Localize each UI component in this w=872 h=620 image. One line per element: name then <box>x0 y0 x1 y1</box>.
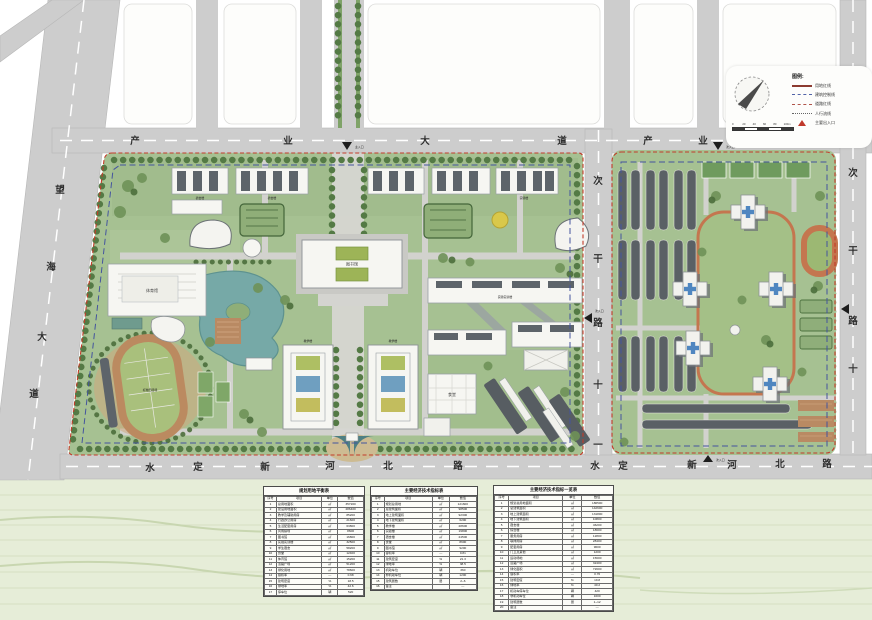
road-label-char: 北 <box>383 460 393 472</box>
indicator-table-center: 主要经济技术指标表 序号项目单位数值1规划总用地㎡1216002总建筑面积㎡98… <box>370 486 478 591</box>
compass-icon <box>726 66 790 148</box>
road-vertical-north-3 <box>604 0 630 129</box>
legend-item: 用地红线 <box>792 83 868 89</box>
road-redline-swatch-icon <box>792 104 812 105</box>
library-label: 图书馆 <box>346 261 358 267</box>
table-row: 17停车位辆520 <box>265 590 364 595</box>
table-cell: 备注 <box>509 605 563 610</box>
yellow-plaza-feature <box>492 212 508 228</box>
road-label-char: 次 <box>593 175 603 187</box>
main-entrance-label: 主入口 <box>355 144 364 149</box>
legend-list: 图例: 用地红线 建筑控制线 道路红线 人行流线 主要出入口 <box>790 66 872 148</box>
road-label-char: 干 <box>848 246 858 257</box>
legend-item: 人行流线 <box>792 111 868 117</box>
entrance-triangle-icon <box>798 120 806 126</box>
road-label-char: 望 <box>55 184 65 196</box>
table-title: 主要经济技术指标一览表 <box>494 486 613 495</box>
table-cell: 停车位 <box>276 590 322 595</box>
legend-item: 主要出入口 <box>792 120 868 126</box>
road-label-char: 干 <box>593 254 603 265</box>
table-cell: 16 <box>372 584 385 589</box>
road-label-char: 产 <box>130 135 140 147</box>
table-cell: 辆 <box>322 590 338 595</box>
dorm-label-2: 宿舍楼 <box>268 195 277 200</box>
road-label-char: 水 <box>590 460 600 472</box>
canteen-label: 食堂 <box>448 391 456 397</box>
road-label-char: 一 <box>593 440 603 451</box>
road-label-char: 新 <box>687 459 697 471</box>
road-label-char: 产 <box>643 135 653 147</box>
road-label-char: 海 <box>46 261 56 273</box>
road-label-char: 定 <box>192 461 203 473</box>
pedestrian-line-swatch-icon <box>792 113 812 114</box>
indicator-table-right: 主要经济技术指标一览表 序号项目单位数值1规划总用地面积㎡1865002总建筑面… <box>493 485 614 612</box>
table-cell: 520 <box>338 590 364 595</box>
right-running-track <box>804 228 835 274</box>
road-label-char: 大 <box>420 135 430 147</box>
scale-tick: 80 <box>773 122 783 126</box>
table-cell: — <box>582 605 613 610</box>
table-row: 20备注— <box>495 605 613 610</box>
legend-item-label: 主要出入口 <box>815 120 835 126</box>
table-title: 主要经济技术指标表 <box>371 487 477 496</box>
secondary-entrance-label-3: 次入口 <box>595 308 604 313</box>
scale-bar: 0 20 40 60 80 100m <box>732 122 794 131</box>
road-label-char: 业 <box>283 135 293 147</box>
road-label-char: 十 <box>593 379 603 391</box>
gym-label: 体育馆 <box>146 287 158 293</box>
road-vertical-north-2 <box>300 0 322 129</box>
road-label-char: 路 <box>822 458 832 470</box>
scale-tick: 60 <box>763 122 773 126</box>
redline-swatch-icon <box>792 85 812 87</box>
road-label-char: 路 <box>453 460 463 472</box>
hedge-garden-west <box>240 204 284 236</box>
legend-item-label: 道路红线 <box>815 101 831 107</box>
road-label-char: 道 <box>557 135 567 147</box>
road-label-char: 定 <box>617 460 628 472</box>
teach-label-a: 教学楼 <box>304 338 313 343</box>
legend-item: 道路红线 <box>792 101 868 107</box>
scale-tick: 100m <box>784 122 794 126</box>
table-cell <box>563 605 582 610</box>
legend-title: 图例: <box>792 73 868 80</box>
road-vertical-north-4 <box>697 0 719 129</box>
table-cell: 备注 <box>384 584 432 589</box>
road-label-char: 路 <box>848 315 858 327</box>
dorm-label-1: 宿舍楼 <box>196 195 205 200</box>
road-label-char: 路 <box>593 317 603 329</box>
road-label-char: 水 <box>145 462 155 474</box>
legend-item-label: 建筑控制线 <box>815 92 835 98</box>
road-label-char: 次 <box>848 167 858 179</box>
road-label-char: 河 <box>325 460 335 472</box>
table-row: 16备注— <box>372 584 477 589</box>
lab-label: 实验实训楼 <box>498 294 513 299</box>
legend-item-label: 用地红线 <box>815 83 831 89</box>
road-label-char: 北 <box>775 458 785 470</box>
land-balance-table: 规划用地平衡表 序号项目单位数值1总用地面积㎡3572002建设用地面积㎡286… <box>263 486 365 597</box>
road-label-char: 河 <box>727 459 737 471</box>
secondary-entrance-label-2: 次入口 <box>716 457 725 462</box>
stadium-label: 标准田径场 <box>143 387 158 392</box>
road-label-char: 十 <box>848 363 858 375</box>
road-label-char: 大 <box>37 331 47 343</box>
teach-label-b: 教学楼 <box>389 338 398 343</box>
table-title: 规划用地平衡表 <box>264 487 364 496</box>
scale-tick: 20 <box>742 122 752 126</box>
scale-tick: 0 <box>732 122 742 126</box>
legend-card: 0 20 40 60 80 100m 图例: 用地红线 建筑控制线 道路红线 人… <box>726 66 872 148</box>
hedge-garden-east <box>424 204 472 238</box>
road-label-char: 道 <box>29 388 39 400</box>
road-label-char: 业 <box>698 135 708 147</box>
legend-item-label: 人行流线 <box>815 111 831 117</box>
road-vertical-north-1 <box>196 0 218 129</box>
compass: 0 20 40 60 80 100m <box>726 66 790 148</box>
masterplan-canvas: 标准田径场 体育馆 <box>0 0 872 620</box>
table-cell: 20 <box>495 605 509 610</box>
dorm-label-3: 实验楼 <box>520 195 529 200</box>
legend-item: 建筑控制线 <box>792 92 868 98</box>
table-cell: 17 <box>265 590 277 595</box>
control-line-swatch-icon <box>792 94 812 95</box>
road-label-char: 新 <box>260 461 270 473</box>
scale-tick: 40 <box>753 122 763 126</box>
table-cell: — <box>449 584 476 589</box>
table-cell <box>432 584 449 589</box>
